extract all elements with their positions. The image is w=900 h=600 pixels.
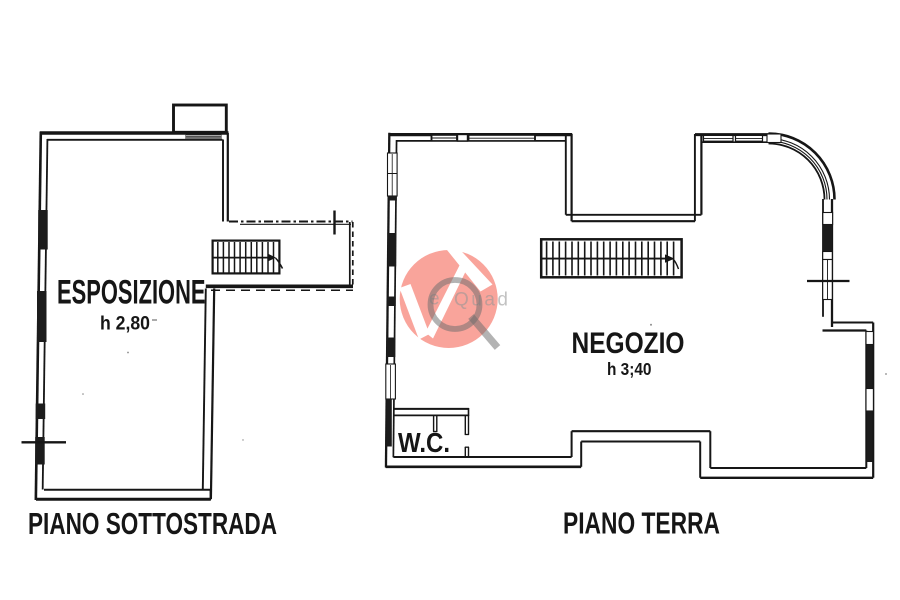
- svg-text:h 2,80: h 2,80: [100, 312, 150, 334]
- svg-text:h 3;40: h 3;40: [607, 359, 652, 379]
- svg-text:ESPOSIZIONE: ESPOSIZIONE: [57, 274, 206, 312]
- svg-text:W.C.: W.C.: [398, 427, 450, 458]
- svg-text:PIANO SOTTOSTRADA: PIANO SOTTOSTRADA: [28, 507, 277, 541]
- svg-text:PIANO TERRA: PIANO TERRA: [563, 506, 720, 540]
- svg-text:NEGOZIO: NEGOZIO: [572, 327, 685, 360]
